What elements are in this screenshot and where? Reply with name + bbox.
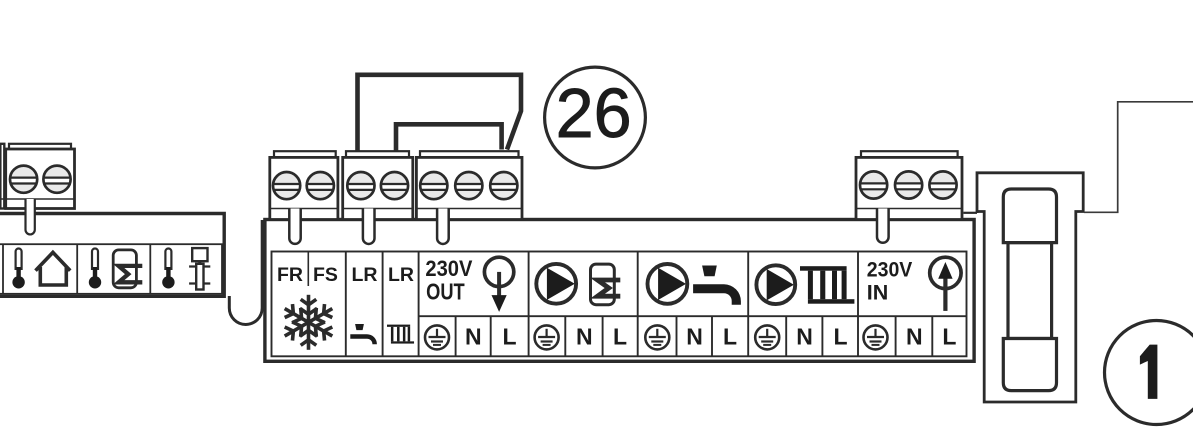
svg-text:L: L xyxy=(503,324,517,350)
svg-text:IN: IN xyxy=(867,280,889,304)
svg-text:26: 26 xyxy=(556,74,632,152)
svg-text:N: N xyxy=(576,324,593,350)
svg-text:FR: FR xyxy=(277,264,303,286)
svg-text:N: N xyxy=(906,324,923,350)
svg-text:FS: FS xyxy=(313,264,338,286)
svg-text:N: N xyxy=(686,324,703,350)
svg-text:L: L xyxy=(942,324,956,350)
svg-text:230V: 230V xyxy=(425,256,472,281)
svg-text:230V: 230V xyxy=(867,258,913,282)
svg-text:LR: LR xyxy=(352,264,378,286)
svg-text:L: L xyxy=(723,324,737,350)
svg-text:LR: LR xyxy=(388,264,414,286)
svg-text:L: L xyxy=(613,324,627,350)
svg-text:N: N xyxy=(796,324,813,350)
svg-text:N: N xyxy=(465,324,482,350)
svg-text:OUT: OUT xyxy=(426,279,465,305)
svg-text:L: L xyxy=(834,324,848,350)
